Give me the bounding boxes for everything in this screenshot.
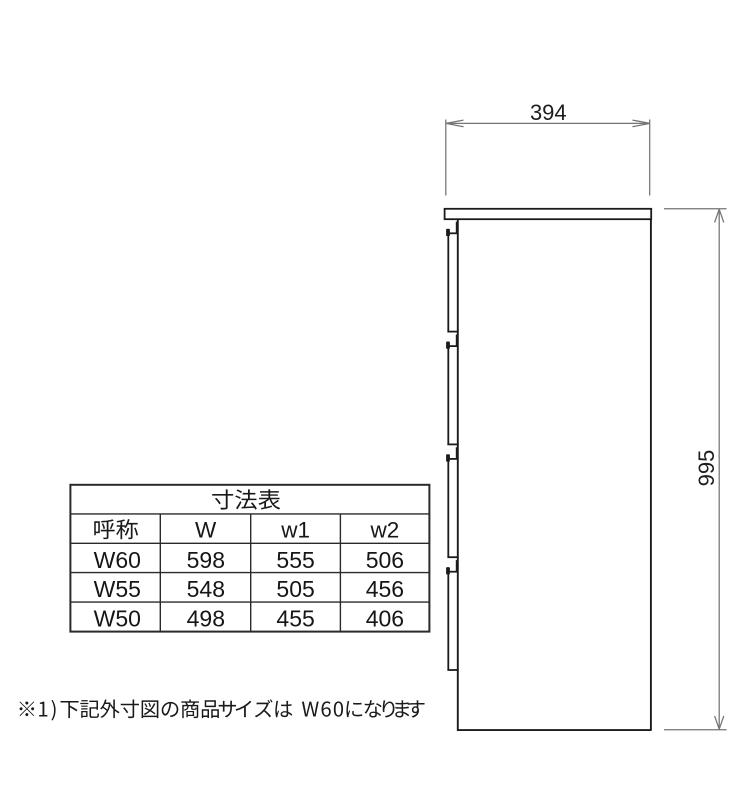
- svg-text:394: 394: [530, 100, 567, 125]
- svg-text:W55: W55: [94, 576, 141, 602]
- svg-text:W60: W60: [94, 547, 141, 573]
- svg-text:406: 406: [366, 606, 404, 632]
- svg-text:505: 505: [276, 576, 314, 602]
- svg-text:W: W: [195, 517, 217, 542]
- svg-text:995: 995: [694, 450, 719, 487]
- svg-text:548: 548: [187, 576, 225, 602]
- svg-text:555: 555: [276, 547, 314, 573]
- svg-text:W50: W50: [94, 606, 141, 632]
- svg-text:506: 506: [366, 547, 404, 573]
- svg-text:598: 598: [187, 547, 225, 573]
- svg-text:456: 456: [366, 576, 404, 602]
- svg-text:455: 455: [276, 606, 314, 632]
- svg-text:w1: w1: [280, 517, 310, 542]
- svg-text:498: 498: [187, 606, 225, 632]
- svg-text:w2: w2: [370, 517, 400, 542]
